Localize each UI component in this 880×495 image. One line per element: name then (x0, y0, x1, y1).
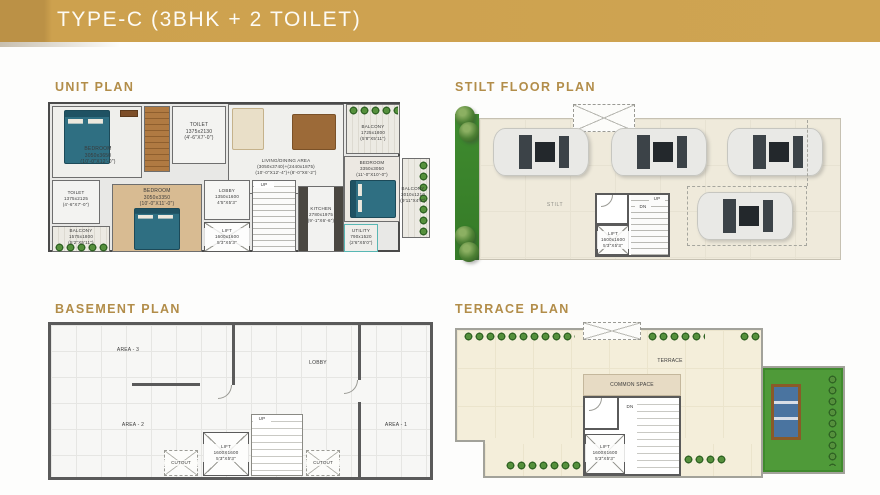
page-title: TYPE-C (3BHK + 2 TOILET) (57, 8, 361, 32)
pergola-daybed-icon (771, 384, 801, 440)
basement-plan: AREA - 3 LOBBY AREA - 2 AREA - 1 UP LIFT… (48, 322, 433, 480)
cutout-right-label: CUTOUT (306, 460, 340, 466)
stilt-label: STILT (535, 202, 575, 209)
balcony-top-label: BALCONY 1725x1800 (5'8"X5'11") (348, 124, 398, 142)
terrace-plan: TERRACE COMMON SPACE DN LIFT 1600X1600 5… (455, 322, 845, 480)
stilt-floor-plan: STILT LIFT 1600x1600 5'3"X5'3" UP DN (455, 98, 845, 265)
terrace-label: TERRACE (640, 358, 700, 365)
car-icon (697, 192, 793, 240)
upper-stairs-icon (144, 106, 170, 172)
terrace-plan-heading: TERRACE PLAN (455, 302, 570, 316)
wardrobe-icon (120, 110, 138, 117)
area3-label: AREA - 3 (98, 347, 158, 354)
lift-label: LIFT 1600X1600 5'3"X5'3" (585, 444, 625, 462)
car-icon (611, 128, 707, 176)
toilet-1-label: TOILET 1375x2130 (4'-6"X7'-0") (174, 122, 224, 142)
up-label: UP (649, 196, 665, 202)
wall (232, 325, 235, 385)
bed-icon (350, 180, 396, 218)
dn-label: DN (635, 204, 651, 210)
car-icon (493, 128, 589, 176)
wall (358, 325, 361, 380)
stilt-plan-heading: STILT FLOOR PLAN (455, 80, 596, 94)
dining-table-icon (292, 114, 336, 150)
common-space-label: COMMON SPACE (583, 382, 681, 389)
area2-label: AREA - 2 (103, 422, 163, 429)
banner-shadow (0, 42, 120, 47)
living-dining-label: LIVING/DINING AREA (3050x3740)+(2440x187… (232, 158, 340, 176)
kitchen-label: KITCHEN 2780x1975 (9'-1"X6'-6") (302, 206, 340, 224)
unit-plan-heading: UNIT PLAN (55, 80, 134, 94)
lift-label: LIFT 1600x1600 5'3"X5'3" (597, 231, 629, 249)
plants-row (348, 105, 398, 116)
lobby-label: LOBBY 1350x1600 4'5"X5'3" (204, 188, 250, 206)
wall (358, 402, 361, 477)
lift-label: LIFT 1600x1600 5'3"X5'3" (204, 228, 250, 246)
balcony-right-label: BALCONY 3010x1210 (9'11"X4'0") (400, 186, 426, 204)
balcony-left-label: BALCONY 1575x1800 (5'2"X5'11") (54, 228, 108, 246)
plants-column (827, 374, 838, 466)
up-label: UP (253, 416, 271, 422)
plants-row (739, 331, 761, 342)
stairs (251, 414, 303, 476)
stairs (637, 398, 679, 474)
cutout-left-label: CUTOUT (164, 460, 198, 466)
lift-label: LIFT 1600X1600 5'3"X5'3" (203, 444, 249, 462)
toilet-2-label: TOILET 1375x2125 (4'-6"X7'-0") (52, 190, 100, 208)
gate-marking (583, 322, 641, 340)
stairs (252, 180, 296, 252)
sofa-icon (232, 108, 264, 150)
car-icon (727, 128, 823, 176)
driveway-dashed-line (807, 120, 808, 186)
tree-icon (459, 242, 479, 262)
wall (132, 383, 200, 386)
plants-row (505, 460, 589, 471)
plants-row (463, 331, 575, 342)
bedroom-2-label: BEDROOM 3050x3350 (10'-0"X11'-0") (116, 188, 198, 208)
basement-plan-heading: BASEMENT PLAN (55, 302, 181, 316)
plants-row (683, 454, 727, 465)
up-label: UP (254, 182, 274, 188)
plants-row (647, 331, 705, 342)
utility-label: UTILITY 790x1520 (2'6"X5'0") (344, 228, 378, 246)
tree-icon (459, 122, 479, 142)
unit-plan: BEDROOM 3050x3650 (10'-0"X12'-0") TOILET… (48, 98, 432, 256)
bedroom-1-label: BEDROOM 3050x3650 (10'-0"X12'-0") (56, 146, 140, 166)
bed-icon (134, 208, 180, 250)
bedroom-3-label: BEDROOM 3350x3050 (11'-0"X10'-0") (346, 160, 398, 178)
lobby-label: LOBBY (288, 360, 348, 367)
area1-label: AREA - 1 (366, 422, 426, 429)
